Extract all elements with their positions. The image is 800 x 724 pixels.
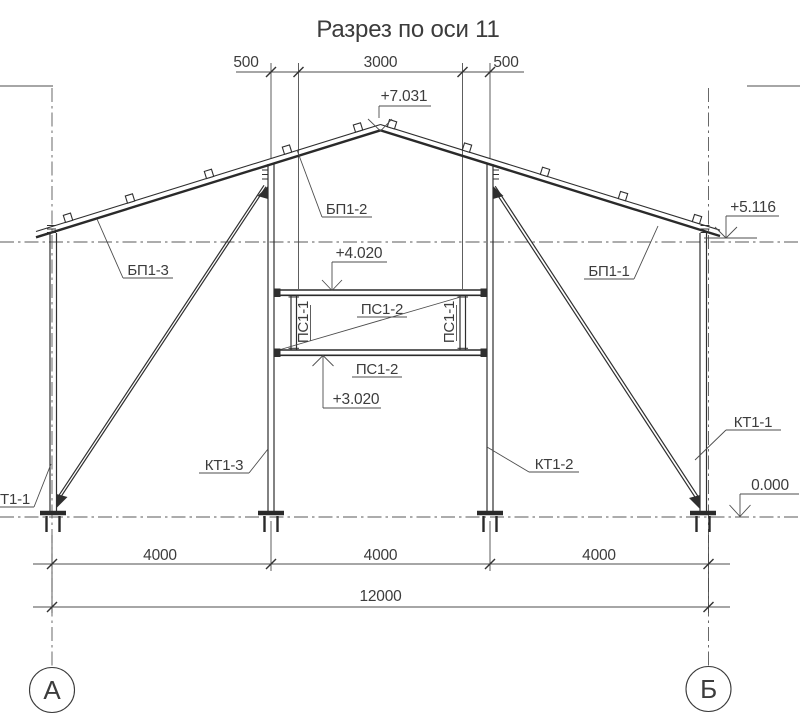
label-mezzanine-post-right: ПС1-1 [441, 301, 458, 343]
label-column-outer-right: КТ1-1 [734, 414, 773, 431]
purlin-clip [204, 169, 213, 178]
dim-top-middle: 3000 [364, 54, 398, 71]
beam-end-plate [481, 349, 488, 358]
dim-top-right: 500 [493, 54, 519, 71]
elevation-ground-value: 0.000 [751, 477, 789, 494]
dim-total: 12000 [359, 588, 402, 605]
dim-top-left: 500 [233, 54, 259, 71]
axis-letter-b: Б [700, 674, 717, 704]
label-mezzanine-post-left: ПС1-1 [295, 301, 312, 343]
label-column-inner-left: КТ1-3 [205, 457, 244, 474]
drawing-page: Разрез по оси 11 500 3000 500 +7.031 +5.… [0, 0, 800, 724]
label-mezzanine-beam-top: ПС1-2 [361, 301, 403, 318]
section-drawing: Разрез по оси 11 500 3000 500 +7.031 +5.… [0, 0, 800, 724]
dim-span-2: 4000 [364, 547, 398, 564]
purlin-clip [692, 214, 701, 223]
purlin-clip [353, 123, 362, 132]
label-roof-beam-left: БП1-3 [127, 262, 168, 279]
purlin-clip [540, 167, 549, 176]
label-column-outer-left: Т1-1 [0, 491, 30, 508]
elevation-apex-value: +7.031 [381, 88, 428, 105]
purlin-clip [618, 191, 627, 200]
dim-span-3: 4000 [582, 547, 616, 564]
elevation-mezzanine-bottom-value: +3.020 [333, 391, 380, 408]
beam-end-plate [481, 289, 488, 298]
label-roof-beam-right: БП1-1 [588, 263, 629, 280]
beam-end-plate [274, 349, 281, 358]
label-roof-beam-apex-left: БП1-2 [326, 201, 367, 218]
drawing-title: Разрез по оси 11 [316, 16, 499, 43]
elevation-mezzanine-top-value: +4.020 [336, 245, 383, 262]
axis-letter-a: А [43, 675, 61, 705]
dim-span-1: 4000 [143, 547, 177, 564]
purlin-clip [387, 120, 396, 129]
label-column-inner-right: КТ1-2 [535, 456, 574, 473]
beam-end-plate [274, 289, 281, 298]
purlin-clip [63, 213, 72, 222]
label-mezzanine-beam-bottom: ПС1-2 [356, 361, 398, 378]
drawing-background [0, 0, 800, 724]
purlin-clip [282, 145, 291, 154]
elevation-eave-value: +5.116 [730, 199, 776, 216]
purlin-clip [125, 194, 134, 203]
purlin-clip [462, 143, 471, 152]
